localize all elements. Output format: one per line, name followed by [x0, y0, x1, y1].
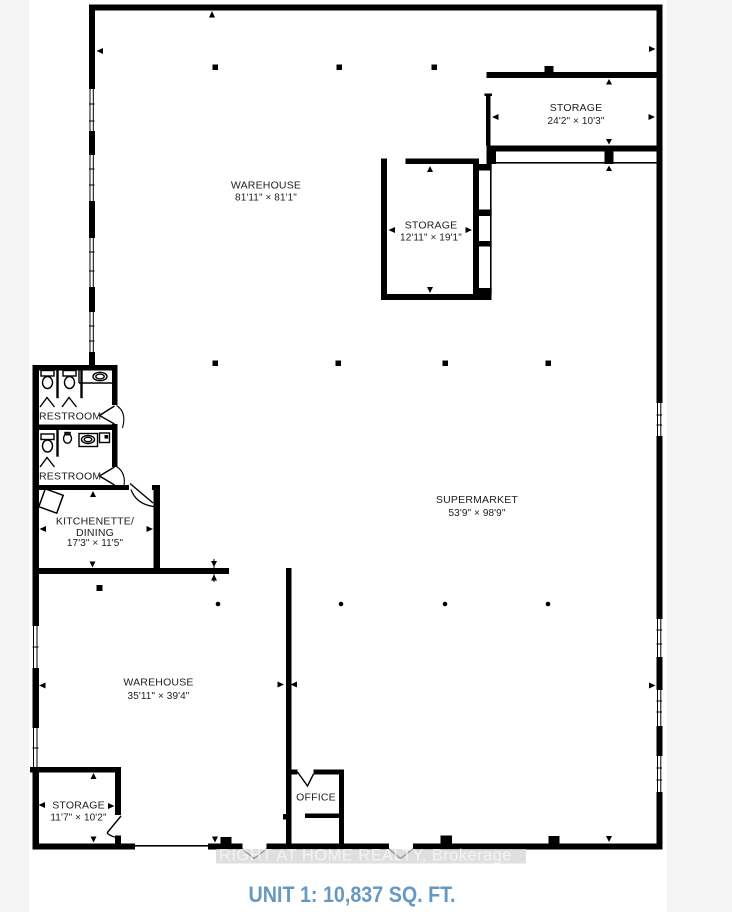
svg-text:KITCHENETTE/: KITCHENETTE/ [56, 516, 134, 528]
svg-text:OFFICE: OFFICE [296, 792, 336, 804]
svg-text:11'7" × 10'2": 11'7" × 10'2" [50, 813, 107, 824]
svg-text:81'11" × 81'1": 81'11" × 81'1" [235, 193, 297, 204]
svg-text:35'11" × 39'4": 35'11" × 39'4" [128, 691, 190, 702]
svg-text:STORAGE: STORAGE [550, 102, 603, 114]
svg-text:WAREHOUSE: WAREHOUSE [231, 180, 301, 192]
svg-text:RIGHT AT HOME REALTY, Brokerag: RIGHT AT HOME REALTY, Brokerage [219, 847, 512, 865]
svg-text:RESTROOM: RESTROOM [39, 411, 101, 423]
svg-text:UNIT 1: 10,837 SQ. FT.: UNIT 1: 10,837 SQ. FT. [249, 882, 456, 907]
svg-text:STORAGE: STORAGE [52, 800, 105, 812]
svg-text:WAREHOUSE: WAREHOUSE [123, 677, 193, 689]
svg-text:STORAGE: STORAGE [405, 220, 458, 232]
svg-text:53'9" × 98'9": 53'9" × 98'9" [449, 508, 506, 519]
svg-text:24'2" × 10'3": 24'2" × 10'3" [548, 116, 605, 127]
svg-text:17'3" × 11'5": 17'3" × 11'5" [67, 538, 124, 549]
svg-text:RESTROOM: RESTROOM [39, 471, 101, 483]
svg-text:SUPERMARKET: SUPERMARKET [436, 494, 519, 506]
svg-text:12'11" × 19'1": 12'11" × 19'1" [400, 233, 462, 244]
